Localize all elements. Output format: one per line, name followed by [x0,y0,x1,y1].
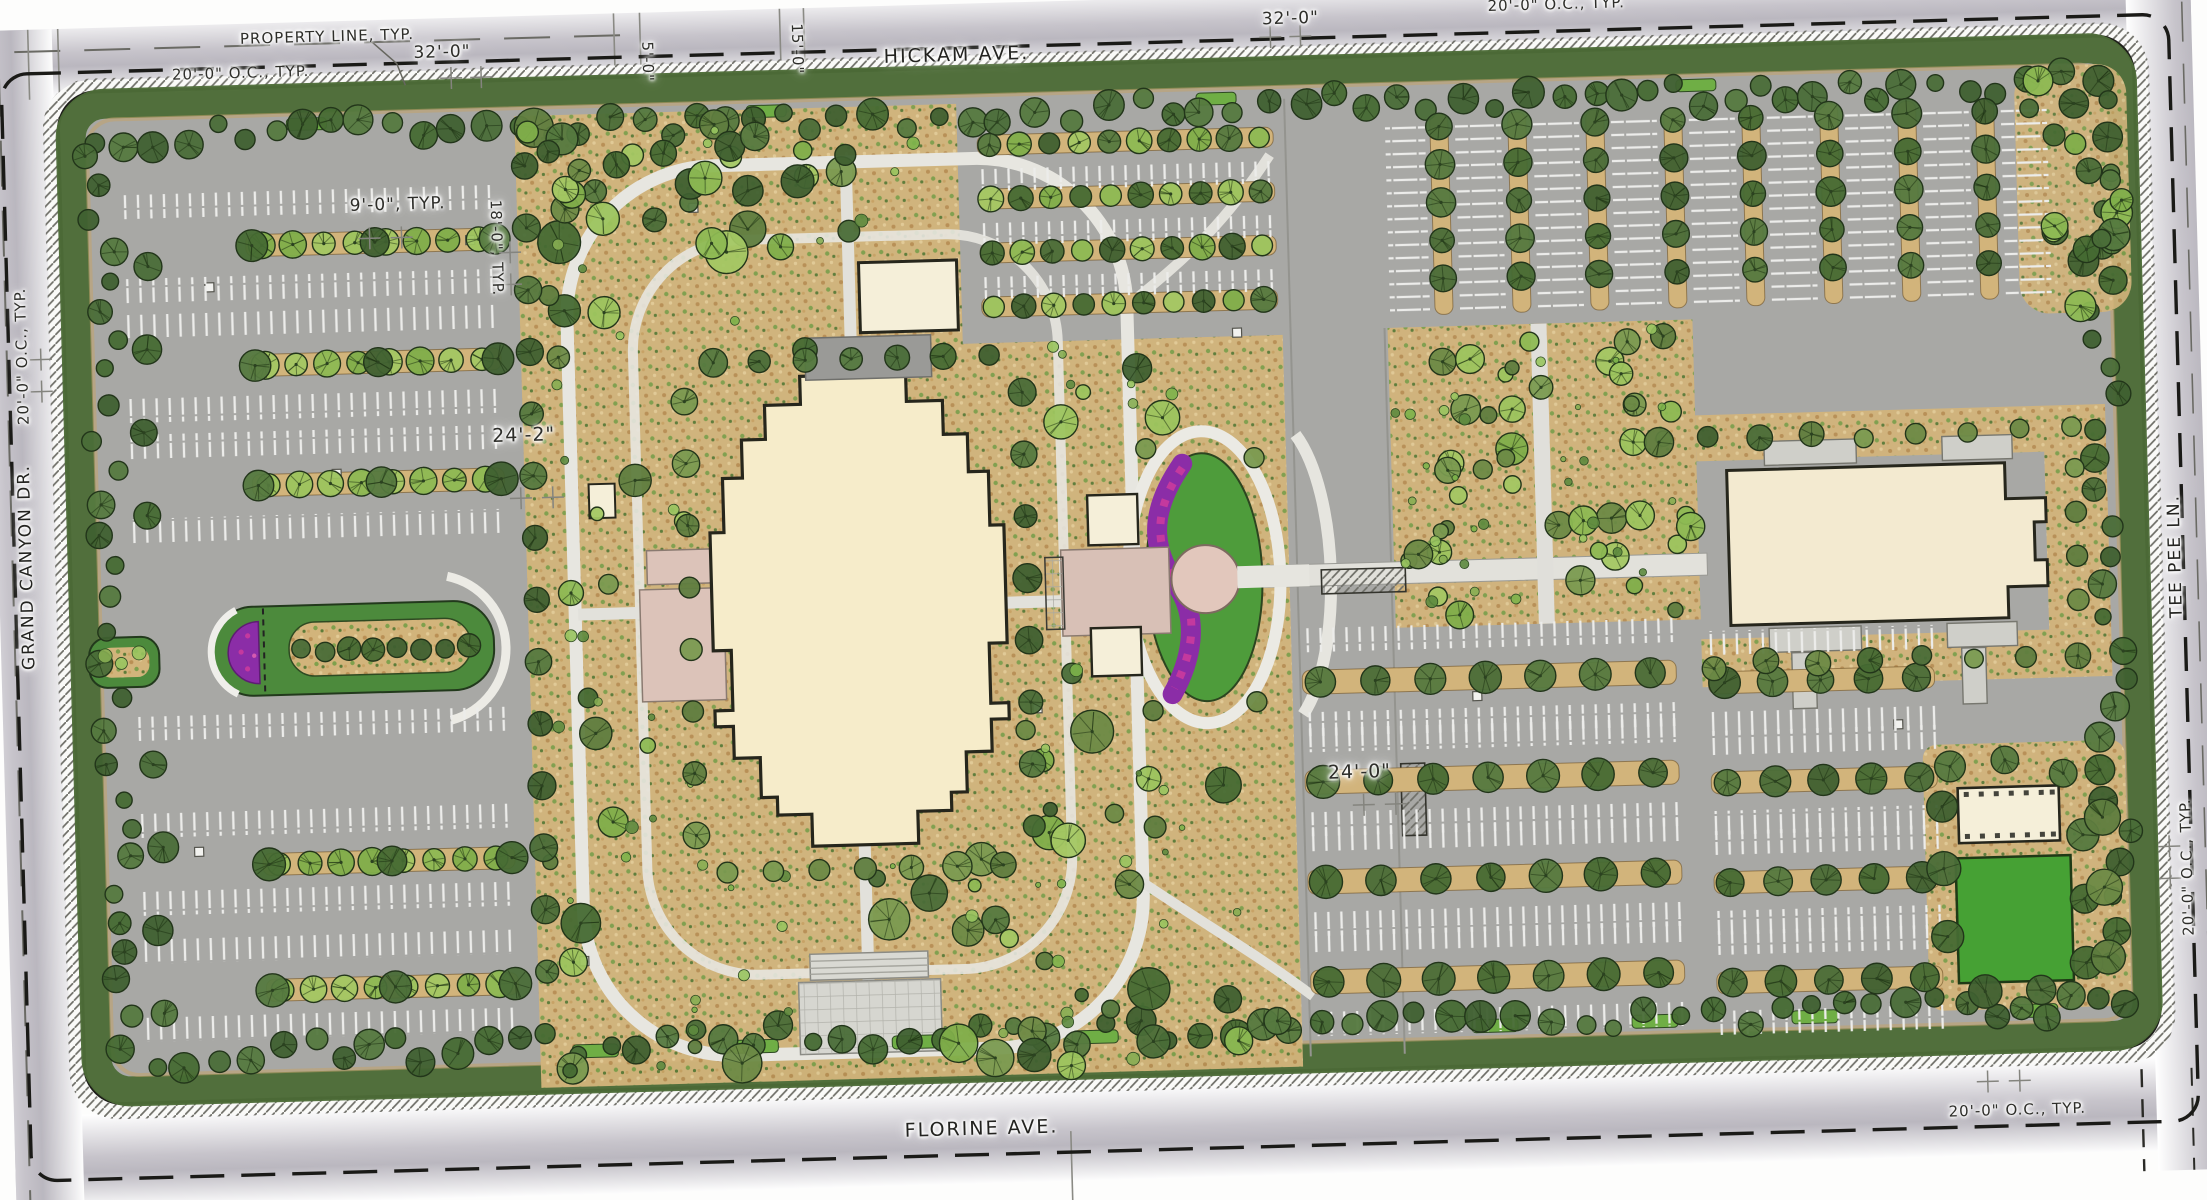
tree-symbol [1635,657,1666,688]
tree-symbol [2085,419,2106,440]
tree-symbol [1426,187,1456,217]
tree-symbol [588,296,621,329]
tree-symbol [1163,291,1184,312]
tree-symbol [379,970,412,1003]
tree-symbol [1861,963,1892,994]
tree-symbol [425,973,450,998]
tree-symbol [1912,645,1932,665]
tree-symbol [2010,419,2029,438]
tree-symbol [86,522,113,549]
tree-symbol [1545,511,1573,539]
tree-symbol [72,144,98,170]
tree-symbol [1718,968,1747,997]
shrub-symbol [1041,744,1050,753]
tree-symbol [96,360,113,377]
tree-symbol [1136,438,1157,459]
tree-symbol [137,131,169,163]
tree-symbol [132,335,162,365]
shrub-symbol [1613,547,1622,556]
tree-symbol [511,153,538,180]
tree-symbol [1020,97,1050,127]
tree-symbol [1384,85,1409,110]
tree-symbol [442,1037,474,1069]
shrub-symbol [728,885,734,891]
tree-symbol [1959,81,1981,103]
tree-symbol [1855,763,1887,795]
tree-symbol [123,819,142,838]
tree-symbol [318,107,343,132]
shrub-symbol [1452,475,1458,481]
shrub-symbol [115,657,127,669]
tree-symbol [1073,293,1095,315]
tree-symbol [81,431,101,451]
tree-symbol [793,348,818,373]
tree-symbol [598,807,629,838]
tree-symbol [1122,353,1152,383]
tree-symbol [312,232,335,255]
tree-symbol [1224,1026,1253,1055]
tree-symbol [382,112,403,133]
tree-symbol [91,718,117,744]
tree-symbol [385,1028,406,1049]
tree-symbol [1976,250,2001,275]
tree-symbol [1040,239,1064,263]
tree-symbol [1974,174,2000,200]
shrub-symbol [649,815,656,822]
street-label-florine: FLORINE AVE. [904,1115,1058,1141]
tree-symbol [1070,185,1092,207]
tree-symbol [1833,991,1856,1014]
tree-symbol [1145,400,1180,435]
label-dim-15: 15'-0" [788,23,807,75]
tree-symbol [1469,661,1502,694]
tree-symbol [2023,66,2054,97]
tree-symbol [930,108,948,126]
tree-symbol [1430,228,1455,253]
tree-symbol [799,119,821,141]
tree-symbol [1859,863,1889,893]
tree-symbol [979,345,1000,366]
tree-symbol [108,912,131,935]
tree-symbol [1902,663,1931,692]
tree-symbol [1425,149,1455,179]
tree-symbol [1609,362,1633,386]
tree-symbol [1716,868,1744,896]
tree-symbol [976,1039,1014,1077]
tree-symbol [896,1028,922,1054]
tree-symbol [1133,88,1153,108]
tree-symbol [1365,865,1396,896]
tree-symbol [1102,292,1126,316]
tree-symbol [671,388,698,415]
tree-symbol [1264,1007,1292,1035]
tree-symbol [2099,91,2117,109]
tree-symbol [619,464,652,497]
tree-symbol [1596,503,1627,534]
tree-symbol [1011,294,1036,319]
shrub-symbol [1423,463,1430,470]
shrub-symbol [711,127,719,135]
tree-symbol [1904,762,1934,792]
tree-symbol [1605,1020,1622,1037]
tree-symbol [2100,547,2120,567]
tree-symbol [361,638,385,662]
shrub-symbol [1426,596,1438,608]
tree-symbol [583,179,607,203]
tree-symbol [680,638,703,661]
tree-symbol [1581,758,1614,791]
tree-symbol [1023,815,1045,837]
tree-symbol [2020,99,2039,118]
tree-symbol [1244,447,1265,468]
shrub-symbol [552,239,563,250]
tree-symbol [1157,128,1181,152]
tree-symbol [2095,608,2112,625]
shrub-symbol [891,167,899,175]
tree-symbol [767,234,794,261]
shrub-symbol [1166,388,1178,400]
tree-symbol [682,701,704,723]
tree-symbol [1476,863,1505,892]
label-oc-bottom-right: 20'-0" O.C., TYP. [1948,1099,2086,1121]
tree-symbol [1529,859,1563,893]
tree-symbol [151,1000,178,1027]
tree-symbol [1162,103,1185,126]
tree-symbol [2083,330,2101,348]
tree-symbol [1577,1016,1596,1035]
tree-symbol [688,1040,702,1054]
tree-symbol [2066,545,2088,567]
plan-canvas: PROPERTY LINE, TYP. 20'-0" O.C., TYP. 32… [0,0,2207,1200]
shrub-symbol [1058,350,1066,358]
tree-symbol [130,419,157,446]
tree-symbol [990,852,1016,878]
north-pavilion [858,260,958,333]
tree-symbol [1643,957,1673,987]
tree-symbol [1926,791,1958,823]
tree-symbol [672,450,700,478]
tree-symbol [99,586,121,608]
tree-symbol [2067,589,2089,611]
label-dim-5: 5'-0" [638,41,657,82]
tree-symbol [1644,427,1674,457]
tree-symbol [306,1028,328,1050]
tree-symbol [1366,1000,1398,1032]
tree-symbol [942,851,972,881]
tree-symbol [1137,1024,1171,1058]
tree-symbol [1972,98,1998,124]
tree-symbol [1497,449,1515,467]
tree-symbol [1464,1000,1496,1032]
shrub-symbol [1561,456,1566,461]
shrub-symbol [578,265,586,273]
tree-symbol [1219,233,1246,260]
tree-symbol [633,107,657,131]
tree-symbol [516,338,544,366]
tree-symbol [547,346,570,369]
shrub-symbol [1120,855,1132,867]
tree-symbol [856,98,888,130]
tree-symbol [1043,404,1078,439]
tree-symbol [1529,375,1553,399]
tree-symbol [256,973,290,1007]
tree-symbol [1068,131,1091,154]
tree-symbol [1665,259,1690,284]
tree-symbol [237,1046,265,1074]
tree-symbol [722,1043,763,1084]
tree-symbol [210,115,228,133]
tree-symbol [535,1023,556,1044]
tree-symbol [1585,260,1613,288]
tree-symbol [1701,997,1726,1022]
tree-symbol [1435,1000,1467,1032]
utility-pad [1232,328,1241,337]
tree-symbol [699,348,728,377]
tree-symbol [1420,863,1451,894]
tree-symbol [2064,133,2086,155]
tree-symbol [87,491,115,519]
tree-symbol [409,467,437,495]
tree-symbol [763,861,784,882]
tree-symbol [1128,182,1154,208]
tree-symbol [2059,88,2089,118]
tree-symbol [835,144,856,165]
tree-symbol [1417,763,1449,795]
tree-symbol [868,898,910,940]
tree-symbol [1093,89,1124,120]
tree-symbol [292,639,311,658]
tree-symbol [98,623,116,641]
tree-symbol [252,848,286,882]
tree-symbol [1964,649,1983,668]
tree-symbol [535,960,559,984]
tree-symbol [142,915,173,946]
shrub-symbol [560,456,568,464]
tree-symbol [1041,293,1066,318]
tree-symbol [1057,1051,1086,1080]
tree-symbol [1101,1000,1119,1018]
tree-symbol [1017,1038,1051,1072]
tree-symbol [530,834,558,862]
tree-symbol [1538,1009,1565,1036]
stall-stripes [1455,115,1506,312]
shrub-symbol [907,137,920,150]
tree-symbol [1581,108,1609,136]
tree-symbol [793,141,812,160]
shrub-symbol [1669,497,1676,504]
tree-symbol [1007,132,1032,157]
tree-symbol [825,105,847,127]
tree-symbol [1188,1023,1213,1048]
tree-symbol [343,105,374,136]
tree-symbol [2080,444,2109,473]
stall-stripes [1922,102,1973,299]
tree-symbol [270,1031,297,1058]
tree-symbol [732,175,763,206]
tree-symbol [1076,385,1091,400]
tree-symbol [1614,329,1640,355]
stall-stripes [1767,106,1818,303]
tree-symbol [298,851,322,875]
tree-symbol [457,633,481,657]
shrub-symbol [1035,882,1040,887]
shrub-symbol [1565,478,1573,486]
tree-symbol [1697,426,1718,447]
shrub-symbol [1460,560,1469,569]
shrub-symbol [817,237,824,244]
shrub-symbol [1401,559,1410,568]
shrub-symbol [1127,380,1135,388]
tree-symbol [561,903,602,944]
tree-symbol [117,843,143,869]
tree-symbol [531,895,560,924]
tree-symbol [1814,965,1843,994]
tree-symbol [978,133,1001,156]
tree-symbol [656,1025,679,1048]
tree-symbol [106,1035,135,1064]
tree-symbol [717,862,738,883]
tree-symbol [2119,819,2143,843]
shrub-symbol [1439,405,1449,415]
tree-symbol [333,1047,356,1070]
tree-symbol [1894,138,1921,165]
shrub-symbol [999,1028,1009,1038]
tree-symbol [1360,665,1390,695]
tree-symbol [2062,417,2082,437]
tree-symbol [1740,181,1766,207]
tree-symbol [1473,762,1504,793]
tree-symbol [471,110,503,142]
shrub-symbol [697,860,708,871]
label-oc-right: 20'-0" O.C., TYP. [2176,798,2198,936]
tree-symbol [112,939,137,964]
shrub-symbol [565,630,577,642]
tree-symbol [286,471,313,498]
tree-symbol [2065,501,2087,523]
shrub-symbol [890,864,895,869]
tree-symbol [2100,692,2130,722]
shrub-symbol [1057,879,1066,888]
tree-symbol [1802,995,1820,1013]
tree-symbol [2087,987,2109,1009]
stall-stripes [1689,108,1740,305]
tree-symbol [1672,1007,1690,1025]
tree-symbol [590,507,604,521]
tree-symbol [1448,83,1479,114]
tree-symbol [279,230,307,258]
shrub-symbol [1587,517,1599,529]
tree-symbol [474,1026,503,1055]
shrub-symbol [1159,919,1168,928]
tree-symbol [1159,182,1182,205]
tree-symbol [1503,476,1521,494]
tree-symbol [436,639,455,658]
tree-symbol [100,238,128,266]
tree-symbol [1247,691,1268,712]
tree-symbol [1819,254,1846,281]
tree-symbol [2088,569,2117,598]
tree-symbol [884,345,909,370]
shrub-symbol [1575,404,1580,409]
shrub-symbol [777,921,788,932]
tree-symbol [410,639,431,660]
shrub-symbol [1613,357,1619,363]
shrub-symbol [1430,536,1441,547]
tree-symbol [1660,144,1689,173]
tree-symbol [2106,381,2131,406]
tree-symbol [1533,960,1564,991]
site-plan-drawing [0,0,2207,1200]
tree-symbol [2049,759,2077,787]
tree-symbol [854,857,877,880]
shrub-symbol [1579,535,1587,543]
tree-symbol [1257,89,1281,113]
tree-symbol [354,1029,385,1060]
tree-symbol [1689,92,1718,121]
tree-symbol [805,1033,822,1050]
tree-symbol [1313,966,1344,997]
tree-symbol [317,470,344,497]
label-stall-depth: 18'-0", TYP. [487,200,508,297]
tree-symbol [1218,179,1244,205]
tree-symbol [1425,113,1452,140]
shrub-symbol [1658,403,1666,411]
tree-symbol [1630,997,1656,1023]
tree-symbol [911,875,948,912]
shrub-symbol [668,504,679,515]
tree-symbol [603,1037,621,1055]
tree-symbol [482,343,514,375]
tree-symbol [2101,358,2120,377]
tree-symbol [516,121,538,143]
tree-symbol [1910,962,1939,991]
shrub-symbol [784,1007,793,1016]
tree-symbol [300,976,327,1003]
tree-symbol [1742,257,1767,282]
site-plan-sheet: PROPERTY LINE, TYP. 20'-0" O.C., TYP. 32… [0,0,2207,1200]
tree-symbol [828,1025,856,1053]
tree-symbol [1455,344,1485,374]
tree-symbol [1126,128,1152,154]
tree-symbol [676,514,699,537]
tree-symbol [642,208,666,232]
tree-symbol [1931,920,1964,953]
tree-symbol [563,1063,578,1078]
shrub-symbol [578,631,589,642]
tree-symbol [1664,74,1682,92]
north-service-apron [805,335,932,381]
tree-symbol [1015,626,1043,654]
tree-symbol [1885,69,1916,100]
tree-symbol [1060,110,1083,133]
tree-symbol [1216,125,1243,152]
tree-symbol [1861,994,1882,1015]
tree-symbol [537,140,560,163]
tree-symbol [2084,799,2121,836]
tree-symbol [1205,767,1242,804]
tree-symbol [1161,236,1184,259]
tree-symbol [1445,601,1473,629]
tree-symbol [1192,290,1215,313]
tree-symbol [2116,668,2138,690]
tree-symbol [1099,237,1125,263]
tree-symbol [1668,602,1684,618]
shrub-symbol [690,995,700,1005]
tree-symbol [2085,754,2116,785]
tree-symbol [939,1024,978,1063]
shrub-symbol [657,1061,666,1070]
tree-symbol [775,104,793,122]
